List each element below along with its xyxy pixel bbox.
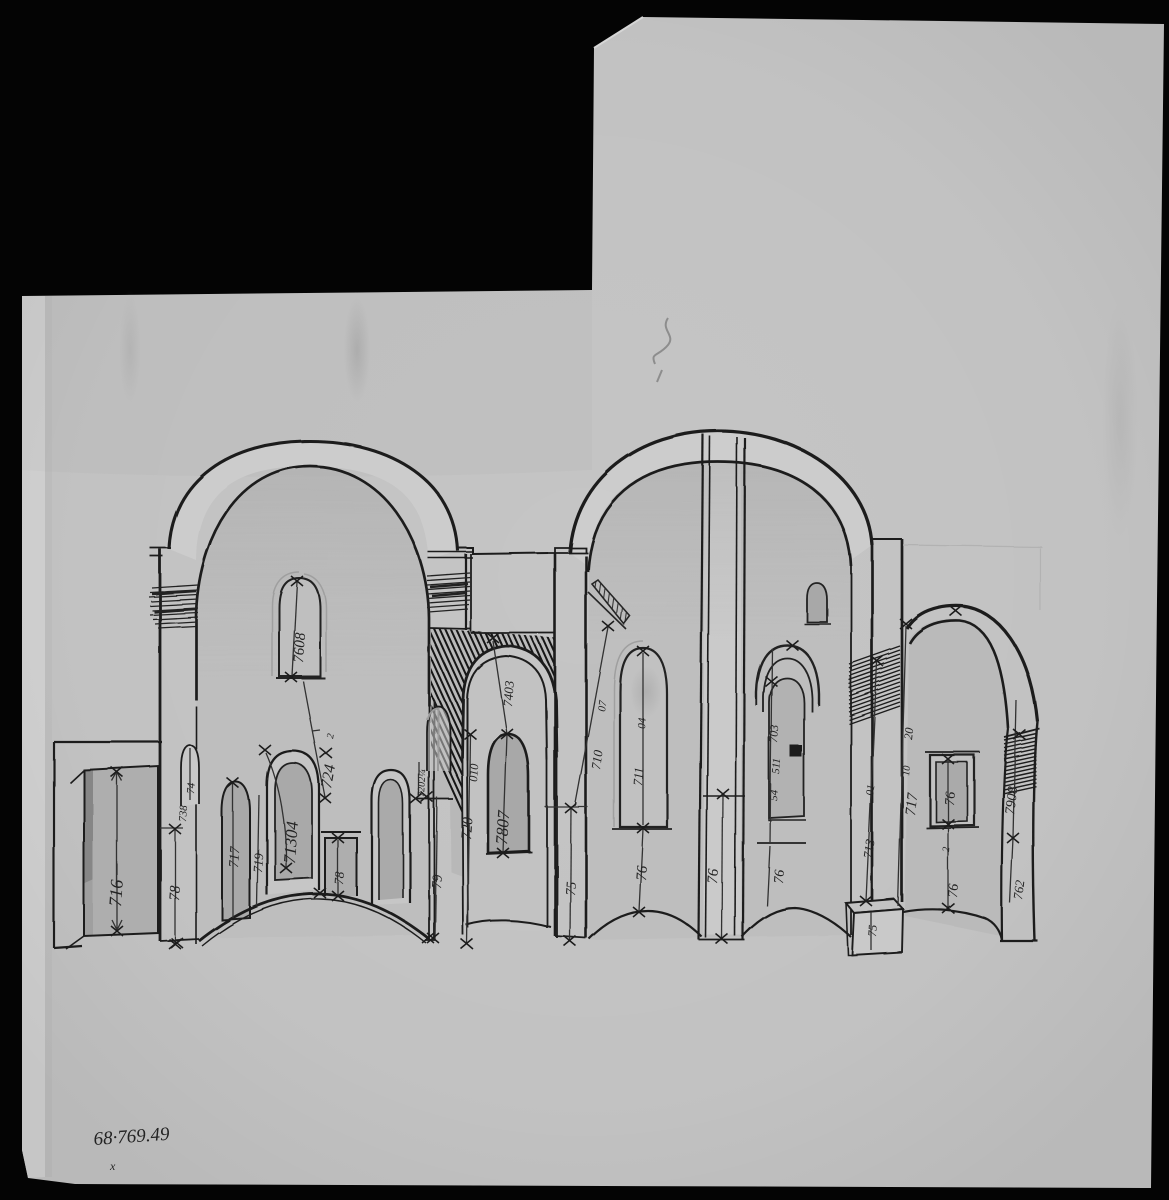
svg-text:76: 76	[946, 883, 962, 898]
svg-text:71304: 71304	[280, 820, 302, 864]
svg-text:2: 2	[941, 846, 952, 852]
svg-text:738: 738	[177, 804, 190, 822]
svg-text:75: 75	[564, 881, 580, 896]
svg-text:719: 719	[250, 852, 266, 873]
svg-text:713: 713	[860, 838, 878, 860]
svg-text:717: 717	[903, 791, 921, 817]
svg-text:75: 75	[865, 924, 880, 937]
svg-text:10: 10	[901, 765, 913, 776]
svg-text:7807: 7807	[492, 809, 513, 846]
svg-text:716: 716	[105, 879, 127, 907]
svg-text:76: 76	[705, 868, 722, 885]
svg-text:76: 76	[634, 865, 651, 882]
svg-text:7202¼: 7202¼	[416, 769, 428, 798]
svg-text:x: x	[109, 1159, 116, 1173]
svg-text:01: 01	[864, 784, 877, 797]
svg-text:78: 78	[167, 885, 184, 902]
svg-text:7608: 7608	[291, 632, 309, 664]
svg-text:703: 703	[766, 724, 781, 743]
svg-text:79: 79	[430, 874, 446, 889]
svg-text:010: 010	[466, 763, 481, 782]
svg-text:511: 511	[770, 758, 783, 774]
svg-text:710: 710	[588, 749, 606, 771]
svg-text:74: 74	[185, 782, 198, 794]
svg-text:20: 20	[901, 727, 916, 740]
svg-text:711: 711	[630, 767, 646, 787]
svg-text:720: 720	[459, 816, 477, 840]
svg-text:7403: 7403	[500, 680, 517, 707]
svg-text:54: 54	[768, 789, 781, 801]
svg-text:717: 717	[227, 845, 243, 868]
svg-text:76: 76	[772, 869, 788, 884]
svg-text:07: 07	[596, 699, 609, 712]
svg-text:76: 76	[943, 791, 959, 806]
svg-text:04: 04	[636, 717, 649, 729]
svg-text:762: 762	[1010, 879, 1027, 901]
svg-text:78: 78	[331, 871, 347, 886]
